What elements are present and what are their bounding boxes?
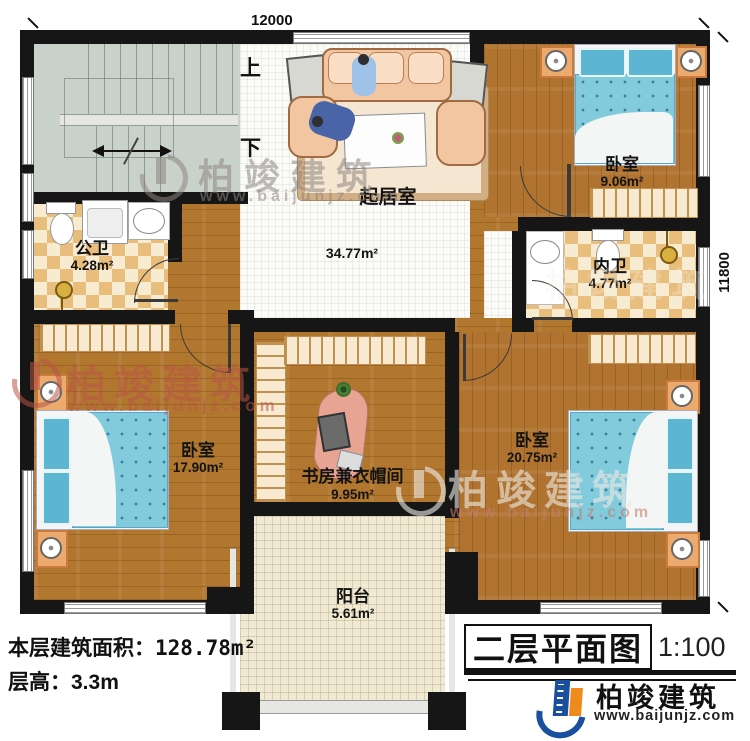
bedroom-bl-area: 17.90m² [154, 461, 242, 475]
window-bottom-right [540, 602, 662, 614]
wall-block-br [445, 552, 478, 614]
stair-arrow-right [160, 145, 172, 157]
wall-bedroom-bl-top-a [34, 310, 175, 324]
bedroom-brm-area: 20.75m² [486, 451, 578, 465]
pillow-bl-2 [42, 471, 71, 525]
floor-drain-public [55, 281, 73, 299]
person-sitting-head [312, 116, 323, 127]
bedroom-bl-label: 卧室 [158, 442, 238, 460]
wall-study-bottom [240, 502, 459, 516]
living-room-label: 起居室 [328, 188, 448, 208]
stair-arrow-left [92, 145, 104, 157]
person-on-sofa-head [358, 54, 369, 65]
floor-drain-public-stem [61, 297, 63, 310]
living-room-floor-patch [484, 231, 512, 318]
dim-tick-top-left [27, 17, 38, 28]
sofa-cushion-3 [408, 52, 444, 84]
window-right-2 [698, 247, 710, 307]
balcony-post-left [222, 692, 260, 730]
bedroom-brm-label: 卧室 [492, 432, 572, 450]
wall-public-bath-right [168, 204, 182, 262]
public-bath-label: 公卫 [52, 240, 132, 258]
title-rule-thick [464, 670, 736, 675]
study-area: 9.95m² [310, 488, 395, 502]
wall-bedroom-bl-top-b [228, 310, 240, 324]
lamp-bl-bottom [40, 537, 62, 559]
dimension-right: 11800 [716, 252, 733, 293]
pillow-bl-1 [42, 417, 71, 471]
door-leaf-private-bath [532, 317, 572, 320]
wall-private-bath-left [512, 231, 526, 320]
floor-area-label: 本层建筑面积： [8, 637, 155, 660]
lamp-brm-top [671, 385, 693, 407]
balcony-area: 5.61m² [322, 607, 384, 621]
dim-tick-top-right [698, 17, 709, 28]
shower-head-private [660, 246, 678, 264]
armchair-right [436, 100, 486, 166]
wardrobe-tr [590, 188, 698, 218]
private-bath-area: 4.77m² [564, 277, 656, 291]
stair-up-label: 上 [240, 58, 261, 80]
door-leaf-bedroom-br [463, 334, 466, 380]
lamp-bl-top [40, 381, 62, 403]
stair-inner-line [64, 78, 174, 158]
window-top [293, 32, 470, 44]
lamp-tr-left [545, 50, 567, 72]
balcony-label: 阳台 [318, 588, 388, 606]
wall-study-right [445, 332, 459, 518]
window-right-1 [698, 85, 710, 177]
dimension-top: 12000 [251, 12, 293, 29]
window-left-2 [22, 173, 34, 222]
window-left-1 [22, 77, 34, 165]
window-left-4 [22, 470, 34, 572]
washer-drum [87, 208, 123, 238]
lamp-brm-bottom [671, 538, 693, 560]
sink-public-basin-icon [133, 208, 165, 234]
balcony-railing-left [230, 548, 236, 708]
bedroom-tr-area: 9.06m² [572, 175, 672, 189]
balcony-post-right [428, 692, 466, 730]
door-leaf-bedroom-tr [567, 164, 571, 216]
door-leaf-public-bath [134, 299, 178, 302]
floor-area-line: 本层建筑面积：128.78m² [8, 632, 256, 662]
table-flowers [392, 132, 404, 144]
monitor-icon [317, 412, 351, 452]
window-bottom-left [64, 602, 206, 614]
floor-plan: 上 下 [0, 0, 750, 741]
brand-logo-building-orange [569, 688, 583, 716]
floor-height-line: 层高：3.3m [8, 666, 119, 696]
private-bath-label: 内卫 [568, 258, 652, 276]
wall-living-bottom [240, 318, 455, 332]
pillow-tr-1 [579, 48, 626, 77]
study-label: 书房兼衣帽间 [270, 468, 435, 486]
floor-area-value: 128.78m² [155, 636, 256, 660]
dim-tick-right-top [717, 31, 728, 42]
wall-block-bl [207, 587, 240, 614]
closet-study-top [284, 336, 426, 365]
wall-private-bath-bottom-a [512, 318, 534, 332]
drawing-title: 二层平面图 [473, 624, 643, 670]
drawing-title-box: 二层平面图 [464, 624, 652, 670]
balcony-railing-bottom [236, 700, 448, 714]
brand-logo-icon [536, 680, 590, 730]
plant-icon [336, 382, 351, 397]
living-room-area: 34.77m² [292, 246, 412, 261]
coffee-table [343, 113, 427, 170]
public-bath-area: 4.28m² [48, 259, 136, 273]
lamp-tr-right [680, 50, 702, 72]
wall-study-left [240, 310, 254, 614]
stair-down-label: 下 [240, 138, 261, 160]
pillow-brm-1 [666, 417, 694, 471]
bedroom-tr-label: 卧室 [572, 156, 672, 174]
brand-logo-building-blue [553, 680, 571, 716]
dim-tick-right-bottom [717, 601, 728, 612]
brand-url: www.baijunjz.com [594, 708, 735, 724]
door-leaf-bedroom-bl [228, 324, 231, 372]
drawing-scale: 1:100 [658, 632, 726, 663]
pillow-brm-2 [666, 471, 694, 525]
wall-private-bath-bottom-b [572, 318, 710, 332]
wardrobe-br [588, 334, 696, 364]
sink-private-basin-icon [530, 240, 560, 264]
pillow-tr-2 [627, 48, 674, 77]
closet-bl [40, 324, 170, 352]
shower-cord-private [666, 231, 668, 247]
window-left-3 [22, 230, 34, 279]
